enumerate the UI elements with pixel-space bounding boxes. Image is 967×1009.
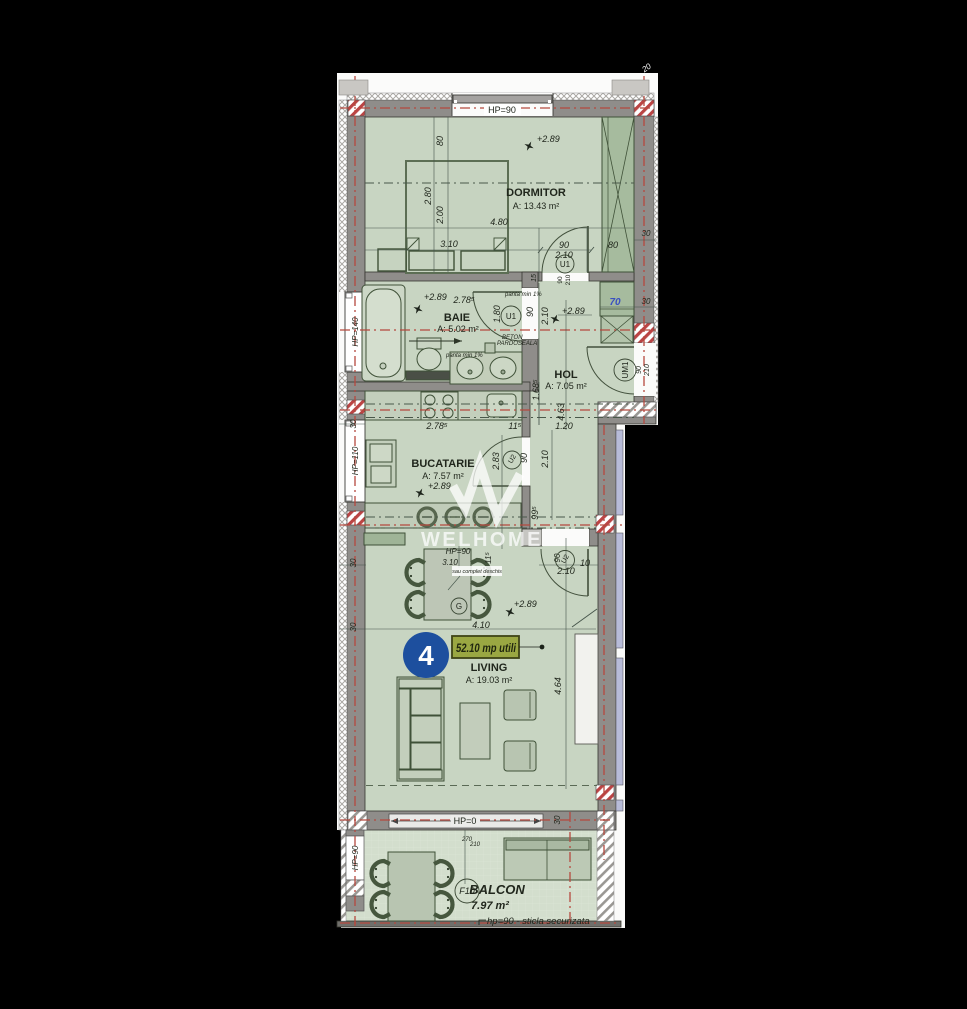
svg-text:BALCON: BALCON (469, 882, 525, 897)
svg-text:A: 7.57 m²: A: 7.57 m² (422, 471, 464, 481)
svg-text:A: 13.43 m²: A: 13.43 m² (513, 201, 560, 211)
svg-text:90: 90 (525, 307, 535, 317)
svg-text:panta min 1%: panta min 1% (504, 292, 542, 298)
svg-text:210: 210 (565, 274, 572, 285)
svg-text:15: 15 (531, 274, 538, 282)
svg-text:sau complet deschis: sau complet deschis (452, 569, 502, 575)
svg-text:2.80: 2.80 (423, 187, 433, 206)
svg-text:90: 90 (559, 240, 569, 250)
svg-text:3.10: 3.10 (440, 239, 458, 249)
svg-text:WELHOME: WELHOME (421, 529, 543, 551)
svg-text:PARDOSEALA: PARDOSEALA (497, 341, 537, 347)
svg-text:HP=0: HP=0 (454, 816, 477, 826)
svg-text:90: 90 (636, 366, 643, 374)
svg-text:+2.89: +2.89 (424, 292, 447, 302)
svg-text:30: 30 (642, 229, 651, 238)
svg-text:BUCATARIE: BUCATARIE (411, 458, 474, 470)
svg-text:1.20: 1.20 (555, 421, 573, 431)
svg-text:2.00: 2.00 (435, 206, 445, 225)
svg-text:HP=90: HP=90 (488, 105, 516, 115)
svg-text:2.10: 2.10 (540, 450, 550, 469)
svg-text:30: 30 (349, 622, 358, 631)
svg-text:A: 7.05 m²: A: 7.05 m² (545, 381, 587, 391)
svg-text:99⁵: 99⁵ (530, 506, 540, 520)
svg-text:2.78⁵: 2.78⁵ (425, 421, 448, 431)
svg-text:+2.89: +2.89 (428, 481, 451, 491)
svg-text:30: 30 (349, 558, 358, 567)
svg-text:80: 80 (435, 136, 445, 146)
svg-text:BAIE: BAIE (444, 312, 470, 324)
svg-text:210: 210 (644, 364, 651, 377)
svg-text:2.78⁵: 2.78⁵ (452, 295, 475, 305)
svg-text:hp=90 - sticla securizata: hp=90 - sticla securizata (487, 916, 590, 927)
svg-text:1.80: 1.80 (492, 305, 502, 323)
svg-text:7.97 m²: 7.97 m² (471, 900, 509, 912)
svg-text:52.10 mp utili: 52.10 mp utili (456, 641, 517, 655)
svg-text:80: 80 (608, 240, 618, 250)
svg-text:LIVING: LIVING (471, 662, 508, 674)
svg-text:A: 19.03 m²: A: 19.03 m² (466, 675, 513, 685)
svg-text:4.10: 4.10 (472, 620, 490, 630)
svg-text:U1: U1 (560, 260, 571, 269)
svg-text:210: 210 (469, 842, 481, 848)
svg-text:+2.89: +2.89 (537, 134, 560, 144)
svg-text:10: 10 (580, 558, 590, 568)
svg-text:F10: F10 (459, 886, 475, 896)
svg-text:panta min 1%: panta min 1% (445, 353, 483, 359)
svg-text:UM1: UM1 (621, 361, 630, 378)
svg-text:30: 30 (642, 297, 651, 306)
svg-text:1.68⁵: 1.68⁵ (531, 379, 541, 401)
svg-text:4.63: 4.63 (556, 403, 566, 421)
svg-text:11⁵: 11⁵ (484, 552, 493, 564)
svg-text:A: 5.02 m²: A: 5.02 m² (437, 324, 479, 334)
svg-text:30: 30 (349, 419, 358, 428)
svg-text:70: 70 (609, 297, 621, 308)
svg-text:+2.89: +2.89 (562, 306, 585, 316)
svg-text:HP=110: HP=110 (351, 446, 360, 475)
svg-text:U1: U1 (506, 312, 517, 321)
svg-text:90: 90 (557, 276, 564, 284)
svg-text:2.10: 2.10 (540, 307, 550, 326)
svg-text:4.80: 4.80 (490, 217, 508, 227)
svg-text:4: 4 (418, 640, 434, 671)
svg-text:3.10: 3.10 (442, 558, 458, 567)
svg-text:DORMITOR: DORMITOR (506, 187, 566, 199)
svg-text:+2.89: +2.89 (514, 599, 537, 609)
svg-text:HP=140: HP=140 (351, 317, 360, 347)
svg-text:2.83: 2.83 (491, 452, 501, 471)
svg-text:G: G (456, 602, 462, 611)
svg-text:HP=90: HP=90 (351, 845, 360, 870)
svg-text:HOL: HOL (554, 369, 578, 381)
svg-text:11⁵: 11⁵ (508, 421, 521, 431)
svg-text:4.64: 4.64 (553, 677, 563, 695)
svg-text:30: 30 (553, 815, 562, 824)
